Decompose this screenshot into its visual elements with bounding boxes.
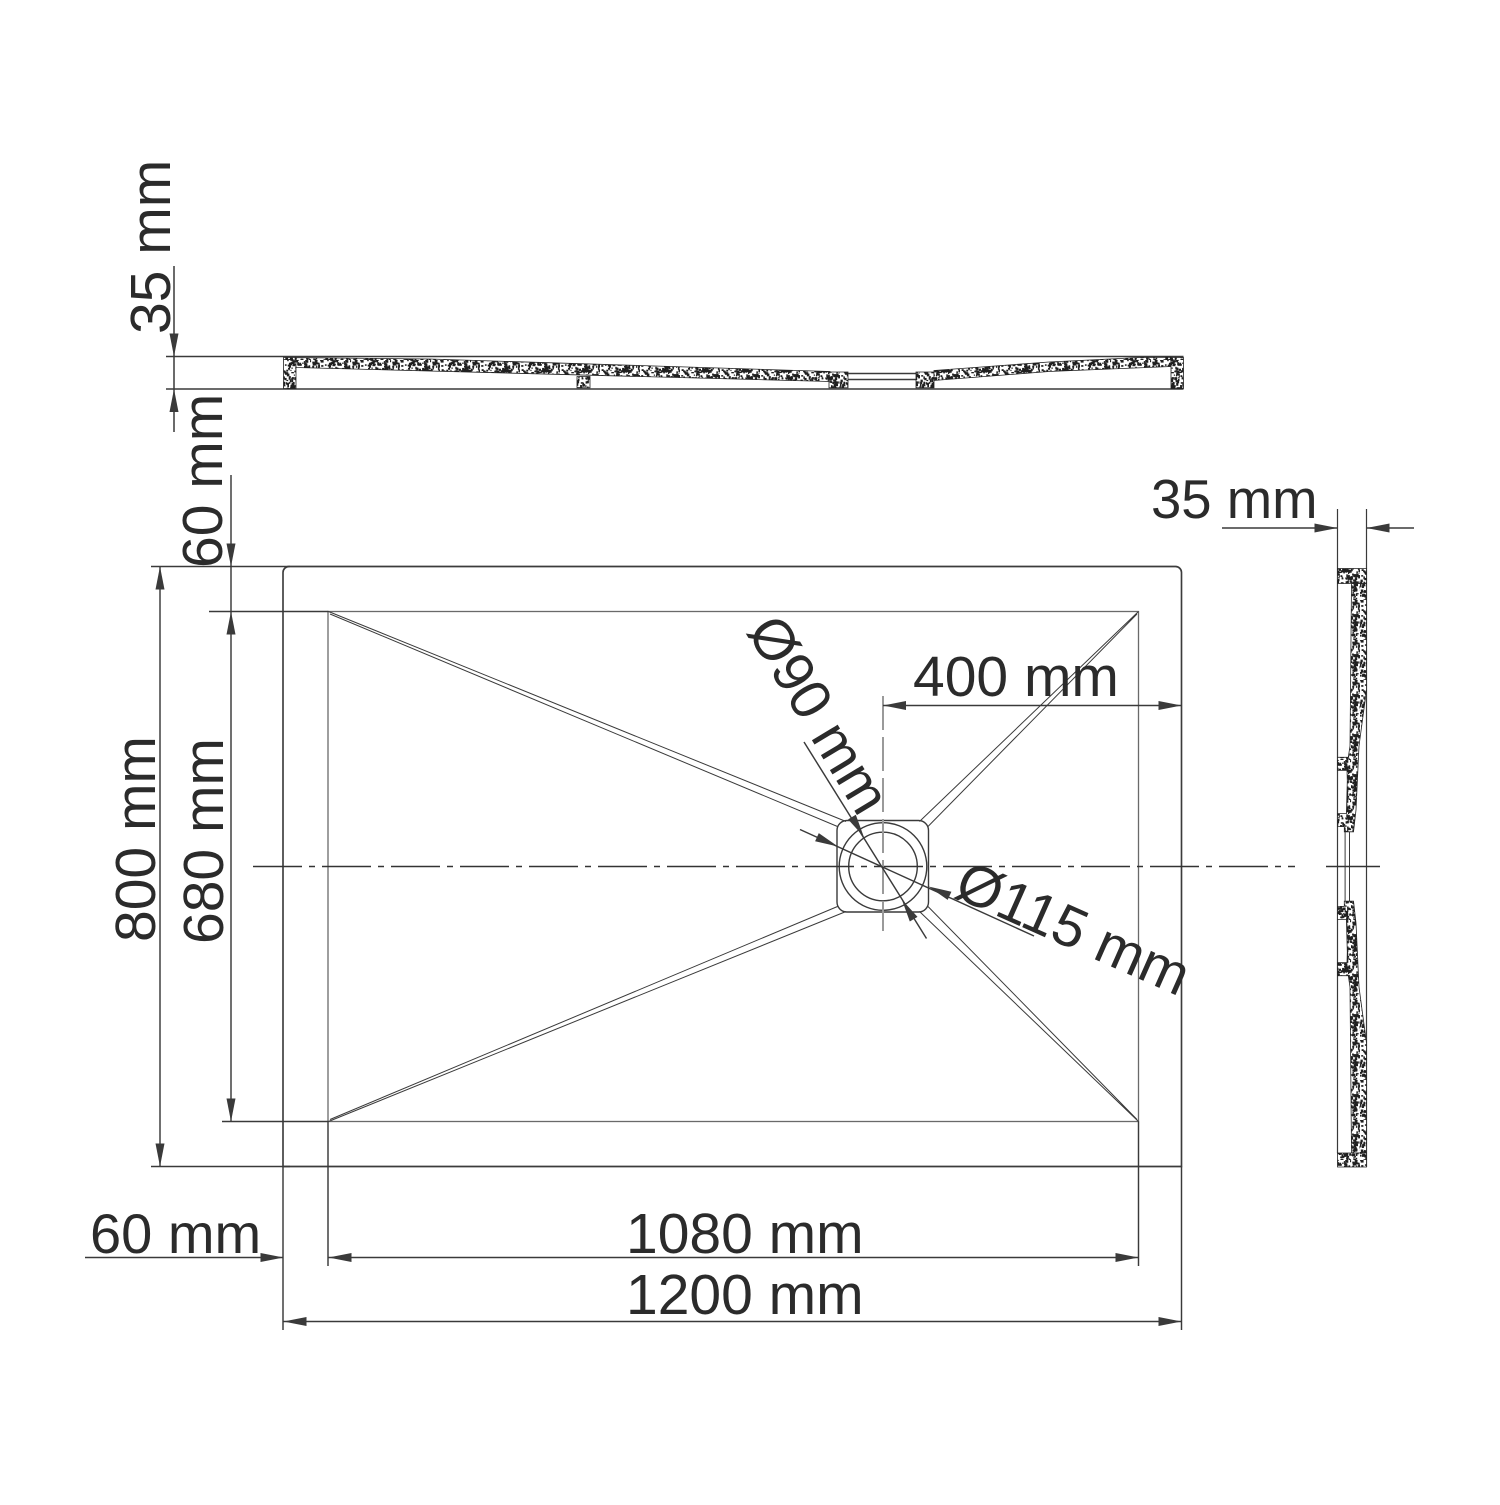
svg-text:800 mm: 800 mm <box>104 736 168 942</box>
svg-text:1080 mm: 1080 mm <box>626 1202 864 1266</box>
svg-text:400 mm: 400 mm <box>913 645 1119 709</box>
svg-text:60 mm: 60 mm <box>171 394 235 568</box>
svg-text:1200 mm: 1200 mm <box>626 1263 864 1327</box>
svg-text:60 mm: 60 mm <box>90 1202 261 1265</box>
svg-text:35 mm: 35 mm <box>119 160 183 334</box>
svg-text:680 mm: 680 mm <box>172 738 236 944</box>
svg-text:35 mm: 35 mm <box>1151 469 1318 530</box>
